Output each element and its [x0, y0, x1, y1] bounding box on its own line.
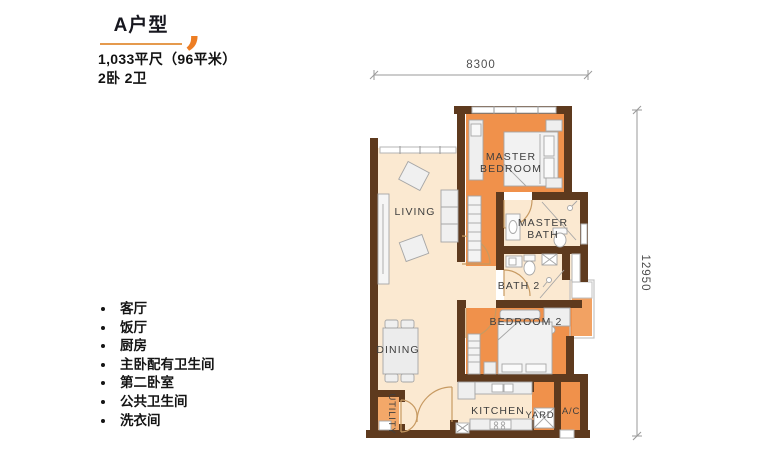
room-label-living: LIVING [394, 206, 435, 218]
window-bath2 [572, 254, 580, 282]
floorplan-page: A户型 , 1,033平尺（96平米） 2卧 2卫 客厅 饭厅 厨房 主卧配有卫… [0, 0, 760, 470]
window-living [380, 147, 456, 153]
dimension-width-value: 8300 [466, 59, 496, 71]
room-label-master-bath: MASTER [518, 217, 568, 229]
room-label-dining: DINING [376, 344, 419, 356]
dimension-height-value: 12950 [639, 255, 651, 292]
window-master-bath [581, 224, 587, 244]
room-label-bedroom2: BEDROOM 2 [490, 316, 563, 328]
room-label-bath2: BATH 2 [498, 280, 541, 292]
dimension-top [370, 70, 592, 80]
room-label-ac: A/C [562, 406, 580, 417]
floor-plan: LIVING MASTER BEDROOM MASTER BATH BATH 2… [0, 0, 760, 470]
wardrobe-corridor [468, 196, 481, 262]
room-label-yard: YARD [526, 410, 555, 421]
room-label-master-bath: BATH [527, 229, 559, 241]
window-master-bedroom [472, 107, 556, 113]
room-label-master-bedroom: BEDROOM [480, 163, 542, 175]
room-label-utility: UTILITY [386, 394, 397, 435]
room-label-kitchen: KITCHEN [471, 405, 525, 417]
bay-window [570, 280, 594, 338]
window-ac [560, 430, 574, 438]
room-label-master-bedroom: MASTER [486, 151, 536, 163]
